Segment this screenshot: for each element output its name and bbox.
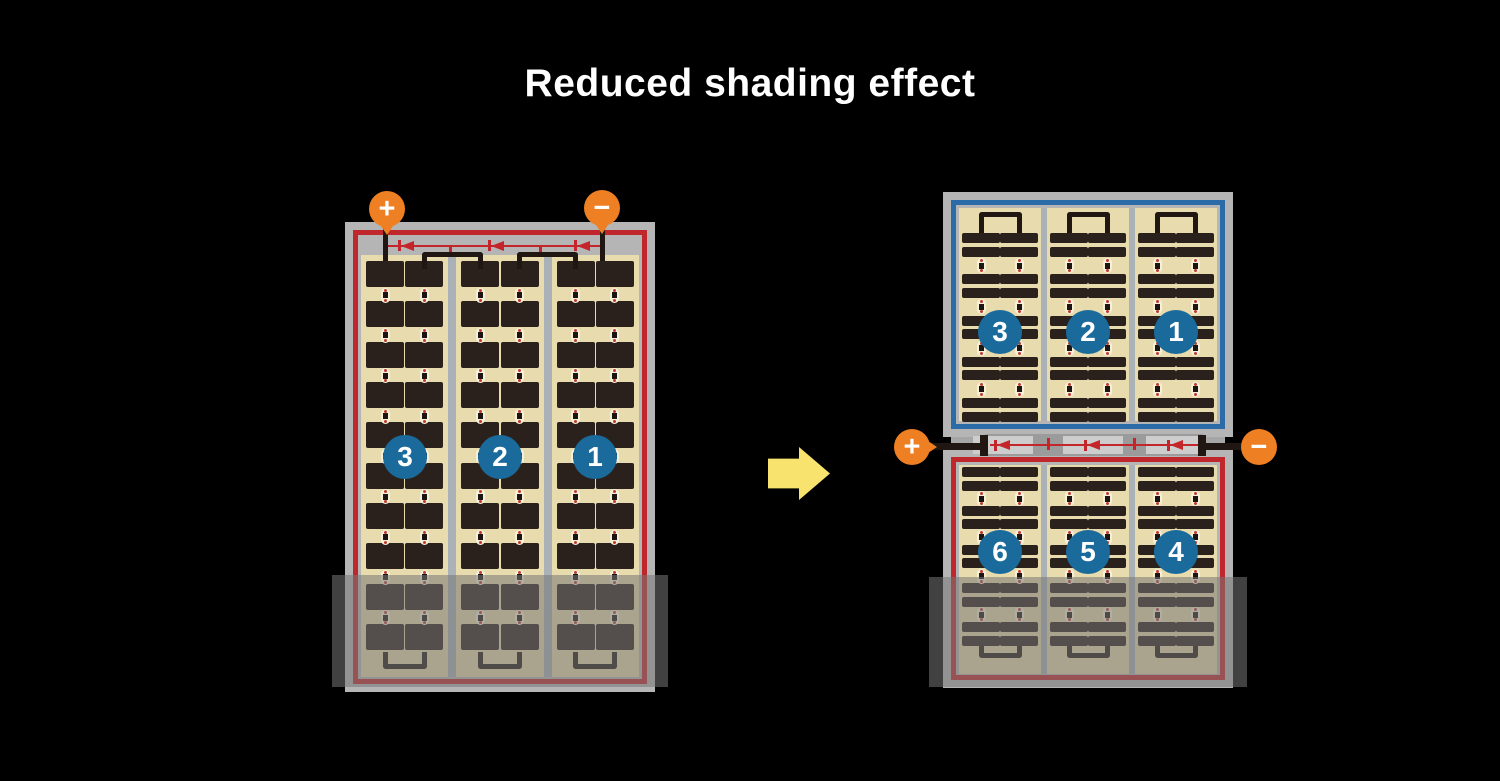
cell-joint xyxy=(610,328,619,343)
center-junction xyxy=(0,0,1500,781)
cell-joint xyxy=(515,489,524,504)
cell-joint xyxy=(381,368,390,383)
string-number-badge: 1 xyxy=(1154,310,1198,354)
plus-terminal-tail xyxy=(381,226,393,235)
cell-joint xyxy=(476,328,485,343)
cell-joint xyxy=(381,328,390,343)
cell-joint xyxy=(977,382,986,397)
minus-terminal-tail xyxy=(596,225,608,234)
cell-joint xyxy=(476,489,485,504)
plus-symbol: + xyxy=(904,433,921,462)
diode-triangle xyxy=(1087,440,1100,450)
cell-joint xyxy=(476,368,485,383)
cell-joint xyxy=(381,288,390,303)
cell-joint xyxy=(977,299,986,314)
string-number-badge: 2 xyxy=(478,435,522,479)
diagram-canvas: Reduced shading effect 3 2 1 + − 3 2 1 xyxy=(0,0,1500,781)
cell-joint xyxy=(381,489,390,504)
cell-joint xyxy=(515,530,524,545)
cell-joint xyxy=(977,258,986,273)
cell-joint xyxy=(571,489,580,504)
cell-joint xyxy=(571,328,580,343)
cell-joint xyxy=(1065,382,1074,397)
cell-joint xyxy=(420,530,429,545)
cell-joint xyxy=(420,288,429,303)
cell-joint xyxy=(1065,299,1074,314)
plus-terminal: + xyxy=(369,191,405,227)
minus-symbol: − xyxy=(1251,433,1268,462)
string-number-badge: 4 xyxy=(1154,530,1198,574)
cell-joint xyxy=(515,328,524,343)
cell-joint xyxy=(476,288,485,303)
string-number-badge: 3 xyxy=(978,310,1022,354)
cell-joint xyxy=(1015,299,1024,314)
cell-joint xyxy=(1191,299,1200,314)
cell-joint xyxy=(420,489,429,504)
cell-joint xyxy=(476,530,485,545)
cell-joint xyxy=(610,288,619,303)
cell-joint xyxy=(610,368,619,383)
plus-symbol: + xyxy=(379,195,396,224)
cell-joint xyxy=(1103,299,1112,314)
minus-terminal: − xyxy=(584,190,620,226)
cell-joint xyxy=(420,368,429,383)
cell-joint xyxy=(1153,258,1162,273)
cell-joint xyxy=(1065,491,1074,506)
cell-joint xyxy=(1191,491,1200,506)
cell-joint xyxy=(571,368,580,383)
cell-joint xyxy=(1103,491,1112,506)
cell-joint xyxy=(515,368,524,383)
shading-overlay-before xyxy=(332,575,668,687)
plus-terminal: + xyxy=(894,429,930,465)
cell-joint xyxy=(1015,382,1024,397)
cell-joint xyxy=(571,530,580,545)
cell-joint xyxy=(1065,258,1074,273)
diode-triangle xyxy=(1170,440,1183,450)
cell-joint xyxy=(610,530,619,545)
cell-joint xyxy=(420,328,429,343)
cell-joint xyxy=(610,489,619,504)
cell-joint xyxy=(381,409,390,424)
cell-joint xyxy=(1015,491,1024,506)
cell-joint xyxy=(1153,299,1162,314)
cell-joint xyxy=(1103,382,1112,397)
cell-joint xyxy=(1191,258,1200,273)
diode-triangle xyxy=(997,440,1010,450)
minus-symbol: − xyxy=(594,194,611,223)
cell-joint xyxy=(420,409,429,424)
cell-joint xyxy=(1153,491,1162,506)
cell-joint xyxy=(515,409,524,424)
cell-joint xyxy=(476,409,485,424)
cell-joint xyxy=(1153,382,1162,397)
cell-joint xyxy=(571,409,580,424)
cell-joint xyxy=(381,530,390,545)
wire-tap xyxy=(1047,438,1050,450)
string-number-badge: 5 xyxy=(1066,530,1110,574)
cell-joint xyxy=(515,288,524,303)
cell-joint xyxy=(977,491,986,506)
cell-joint xyxy=(571,288,580,303)
cell-joint xyxy=(610,409,619,424)
string-number-badge: 3 xyxy=(383,435,427,479)
wire-tap xyxy=(1133,438,1136,450)
string-number-badge: 6 xyxy=(978,530,1022,574)
shading-overlay-after xyxy=(929,577,1247,687)
cell-joint xyxy=(1103,258,1112,273)
cell-joint xyxy=(1191,382,1200,397)
minus-terminal: − xyxy=(1241,429,1277,465)
cell-joint xyxy=(1015,258,1024,273)
string-number-badge: 1 xyxy=(573,435,617,479)
string-number-badge: 2 xyxy=(1066,310,1110,354)
